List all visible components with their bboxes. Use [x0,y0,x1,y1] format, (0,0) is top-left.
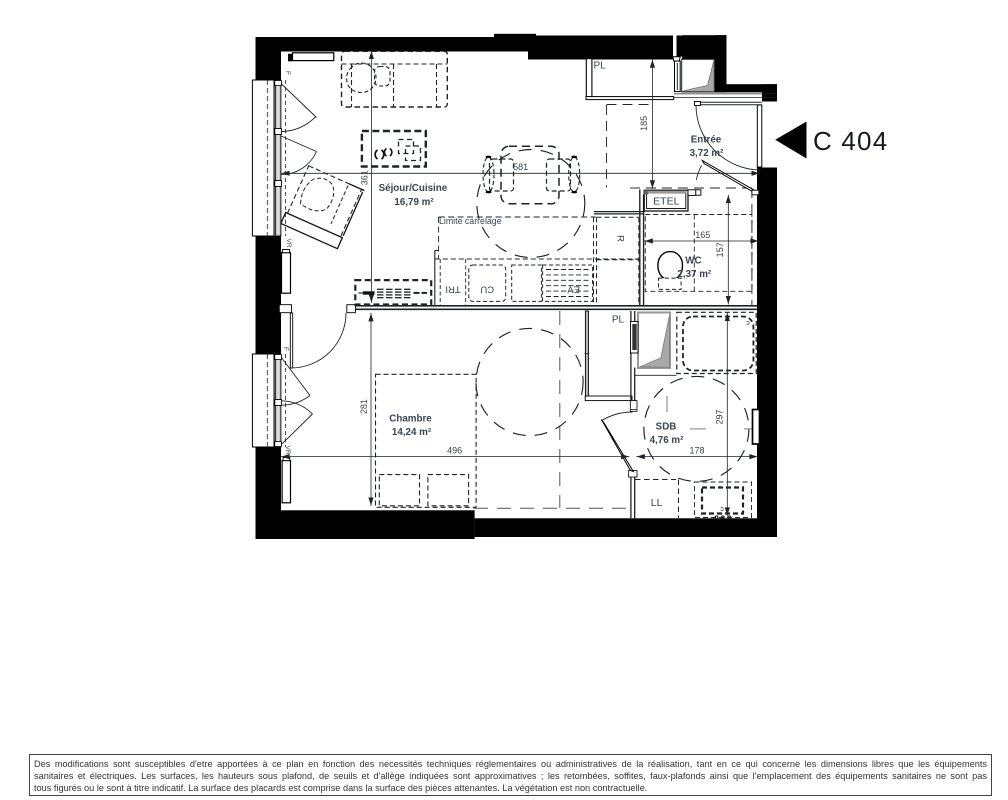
svg-text:LL: LL [651,497,663,509]
svg-text:185: 185 [639,116,649,131]
svg-text:ɔ: ɔ [746,320,750,327]
svg-text:TRI: TRI [445,284,460,295]
svg-text:PL: PL [612,315,625,326]
svg-text:297: 297 [714,409,724,424]
svg-text:281: 281 [359,399,369,414]
svg-text:SDB: SDB [656,422,677,433]
svg-text:Chambre: Chambre [389,414,432,425]
svg-text:PL: PL [594,61,607,72]
svg-text:165: 165 [695,230,710,240]
svg-text:F: F [282,347,289,351]
svg-text:16,79 m²: 16,79 m² [394,197,434,208]
svg-text:361: 361 [360,170,370,185]
svg-text:3,72 m²: 3,72 m² [690,148,725,159]
svg-text:2,37 m²: 2,37 m² [677,269,712,280]
svg-text:178: 178 [689,446,704,456]
svg-text:VR: VR [284,445,291,454]
svg-text:VR: VR [285,238,292,247]
svg-text:581: 581 [513,162,528,172]
svg-text:496: 496 [447,446,462,456]
svg-text:Séjour/Cuisine: Séjour/Cuisine [379,183,448,194]
svg-text:F: F [284,71,291,75]
svg-text:14,24 m²: 14,24 m² [392,427,432,438]
svg-text:WC: WC [685,255,701,266]
svg-text:157: 157 [715,242,725,257]
svg-text:EV: EV [567,284,580,295]
svg-text:R: R [615,235,626,242]
svg-text:Limite carrelage: Limite carrelage [439,216,502,226]
svg-text:Entrée: Entrée [691,135,722,146]
svg-text:CU: CU [480,284,494,295]
svg-text:ETEL: ETEL [653,196,679,208]
svg-text:ɔ: ɔ [720,506,724,513]
svg-text:4,76 m²: 4,76 m² [650,435,685,446]
